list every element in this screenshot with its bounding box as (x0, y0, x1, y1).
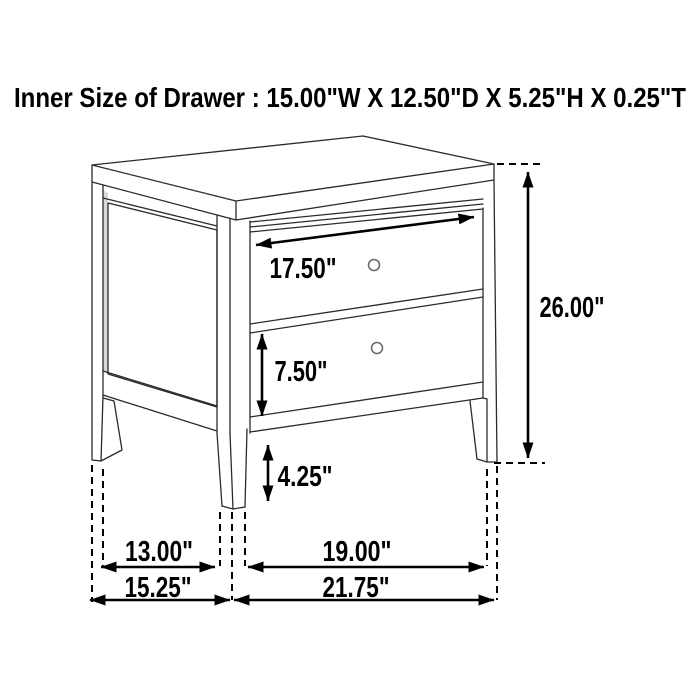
dimension-label: 15.25" (125, 572, 192, 604)
dimension-label: 4.25" (278, 461, 333, 493)
drawer1-bottom-edge (250, 289, 483, 324)
front-right-leg-inner-edge (470, 401, 477, 459)
dimension-side-overall-depth: 15.25" (90, 572, 230, 604)
dimension-diagram: Inner Size of Drawer : 15.00"W X 12.50"D… (0, 0, 700, 700)
dimension-label: 19.00" (323, 536, 392, 568)
tabletop-top-face (92, 136, 494, 201)
dimension-side-leg-span: 13.00" (101, 536, 215, 568)
dimension-front-leg-span: 19.00" (248, 536, 484, 568)
front-left-leg-left-edge (217, 433, 222, 506)
front-top-rail-line-1 (250, 199, 483, 222)
front-left-leg-corner-edge (230, 433, 233, 509)
tabletop-edge-left (92, 165, 236, 220)
left-top-rail-line (103, 198, 217, 226)
dimension-label: 17.50" (270, 253, 337, 285)
back-left-leg-inner-edge (101, 396, 103, 461)
dimension-drawer-face-width: 17.50" (256, 217, 474, 285)
front-bottom-rail-edge (250, 398, 483, 432)
drawer2-knob (372, 343, 383, 354)
front-top-rail-line-2 (250, 204, 483, 227)
dimension-label: 26.00" (540, 292, 605, 324)
front-right-leg-corner-edge (483, 398, 487, 462)
dimension-label: 13.00" (125, 536, 193, 568)
back-left-leg-side-face (101, 398, 122, 461)
back-left-leg-foot (92, 460, 101, 461)
left-side-panel (108, 203, 217, 407)
dimension-label: 21.75" (323, 572, 390, 604)
diagram-canvas: Inner Size of Drawer : 15.00"W X 12.50"D… (0, 0, 700, 700)
dimension-overall-height: 26.00" (528, 172, 605, 458)
dimension-leg-height: 4.25" (268, 445, 333, 501)
dimension-front-overall-width: 21.75" (234, 572, 494, 604)
drawer1-knob (369, 260, 380, 271)
dimension-label: 7.50" (275, 356, 328, 388)
page-title: Inner Size of Drawer : 15.00"W X 12.50"D… (14, 82, 686, 113)
right-silhouette-edge (494, 181, 497, 462)
dimension-lower-drawer-height: 7.50" (262, 334, 328, 416)
drawer2-top-edge (250, 297, 483, 333)
leg-post-shading (103, 190, 108, 374)
front-left-leg-right-edge (245, 429, 247, 507)
nightstand-drawing (92, 136, 497, 509)
